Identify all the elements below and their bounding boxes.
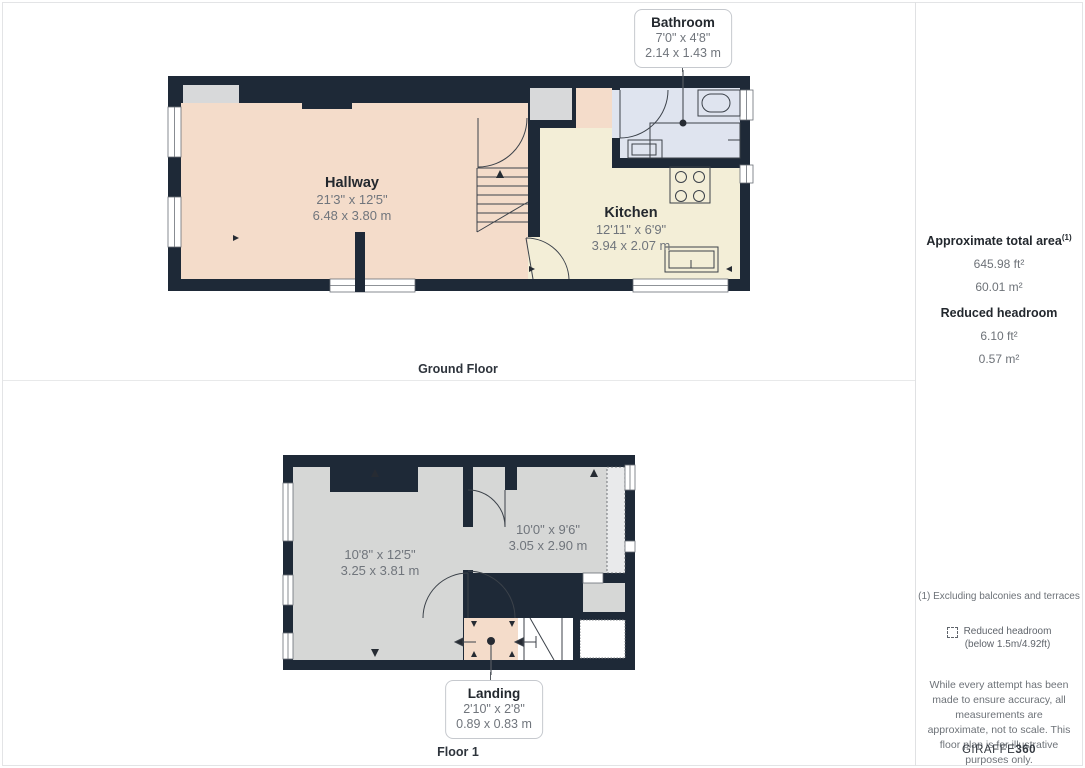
hall-alcove: [576, 88, 612, 128]
hallway-imperial: 21'3" x 12'5": [313, 192, 392, 208]
kitchen-metric: 3.94 x 2.07 m: [592, 238, 671, 254]
alcove-recess: [183, 85, 239, 103]
kitchen-room: [540, 128, 612, 279]
footnote-marker: (1): [1062, 233, 1072, 242]
hallway-label: Hallway 21'3" x 12'5" 6.48 x 3.80 m: [313, 175, 392, 224]
interior-door-gap: [463, 527, 473, 570]
bedroom-1-imperial: 10'8" x 12'5": [341, 547, 420, 563]
kitchen-label: Kitchen 12'11" x 6'9" 3.94 x 2.07 m: [592, 205, 671, 254]
total-area-imperial: 645.98 ft²: [916, 257, 1082, 271]
reduced-headroom-area-2: [580, 620, 625, 658]
bedroom-2-room: [473, 467, 625, 573]
hallway-name: Hallway: [313, 175, 392, 192]
kitchen-imperial: 12'11" x 6'9": [592, 222, 671, 238]
reduced-headroom-imperial: 6.10 ft²: [916, 329, 1082, 343]
bedroom-2-ext: [583, 583, 625, 612]
door-stub-wall: [505, 467, 517, 490]
wall-step: [302, 103, 352, 109]
landing-callout-title: Landing: [456, 685, 532, 702]
chimney-notch: [330, 467, 418, 492]
total-area-title: Approximate total area(1): [916, 233, 1082, 248]
kitchen-name: Kitchen: [592, 205, 671, 222]
bathroom-callout-imperial: 7'0" x 4'8": [645, 31, 721, 46]
landing-connector-dot: [487, 637, 495, 645]
ground-floor-plan: [165, 70, 755, 297]
footnote-block: (1) Excluding balconies and terraces: [916, 590, 1082, 603]
bedroom-2-label: 10'0" x 9'6" 3.05 x 2.90 m: [509, 522, 588, 554]
info-sidebar: Approximate total area(1) 645.98 ft² 60.…: [916, 0, 1082, 768]
reduced-headroom-area: [607, 467, 625, 573]
bathroom-door-gap: [612, 90, 620, 138]
total-area-block: Approximate total area(1) 645.98 ft² 60.…: [916, 233, 1082, 294]
reduced-headroom-title: Reduced headroom: [916, 306, 1082, 320]
total-area-metric: 60.01 m²: [916, 280, 1082, 294]
legend-text: Reduced headroom (below 1.5m/4.92ft): [964, 625, 1052, 651]
bathroom-callout-title: Bathroom: [645, 14, 721, 31]
hallway-metric: 6.48 x 3.80 m: [313, 208, 392, 224]
bedroom-2-metric: 3.05 x 2.90 m: [509, 538, 588, 554]
stairs-area: [518, 618, 573, 660]
cupboard: [530, 88, 572, 120]
bathroom-connector-dot: [680, 120, 687, 127]
reduced-headroom-block: Reduced headroom 6.10 ft² 0.57 m²: [916, 306, 1082, 366]
landing-callout: Landing 2'10" x 2'8" 0.89 x 0.83 m: [445, 680, 543, 739]
footnote-text: (1) Excluding balconies and terraces: [916, 590, 1082, 603]
interior-window: [583, 573, 603, 583]
bedroom-1-metric: 3.25 x 3.81 m: [341, 563, 420, 579]
bedroom-2-imperial: 10'0" x 9'6": [509, 522, 588, 538]
bathroom-callout-metric: 2.14 x 1.43 m: [645, 46, 721, 61]
ground-floor-label: Ground Floor: [418, 362, 498, 376]
landing-callout-metric: 0.89 x 0.83 m: [456, 717, 532, 732]
floorplan-page: Bathroom 7'0" x 4'8" 2.14 x 1.43 m Landi…: [0, 0, 1085, 768]
reduced-headroom-metric: 0.57 m²: [916, 352, 1082, 366]
wall-stub: [355, 232, 365, 292]
stairs-wall: [573, 618, 580, 660]
legend-block: Reduced headroom (below 1.5m/4.92ft): [916, 625, 1082, 651]
bedroom-1-label: 10'8" x 12'5" 3.25 x 3.81 m: [341, 547, 420, 579]
floor-1-plan: [278, 450, 640, 675]
landing-callout-imperial: 2'10" x 2'8": [456, 702, 532, 717]
giraffe360-logo: GIRAFFE360: [916, 744, 1082, 756]
reduced-headroom-icon: [947, 627, 958, 638]
floor-1-label: Floor 1: [437, 745, 479, 759]
floors-divider: [3, 380, 915, 381]
bathroom-callout: Bathroom 7'0" x 4'8" 2.14 x 1.43 m: [634, 9, 732, 68]
